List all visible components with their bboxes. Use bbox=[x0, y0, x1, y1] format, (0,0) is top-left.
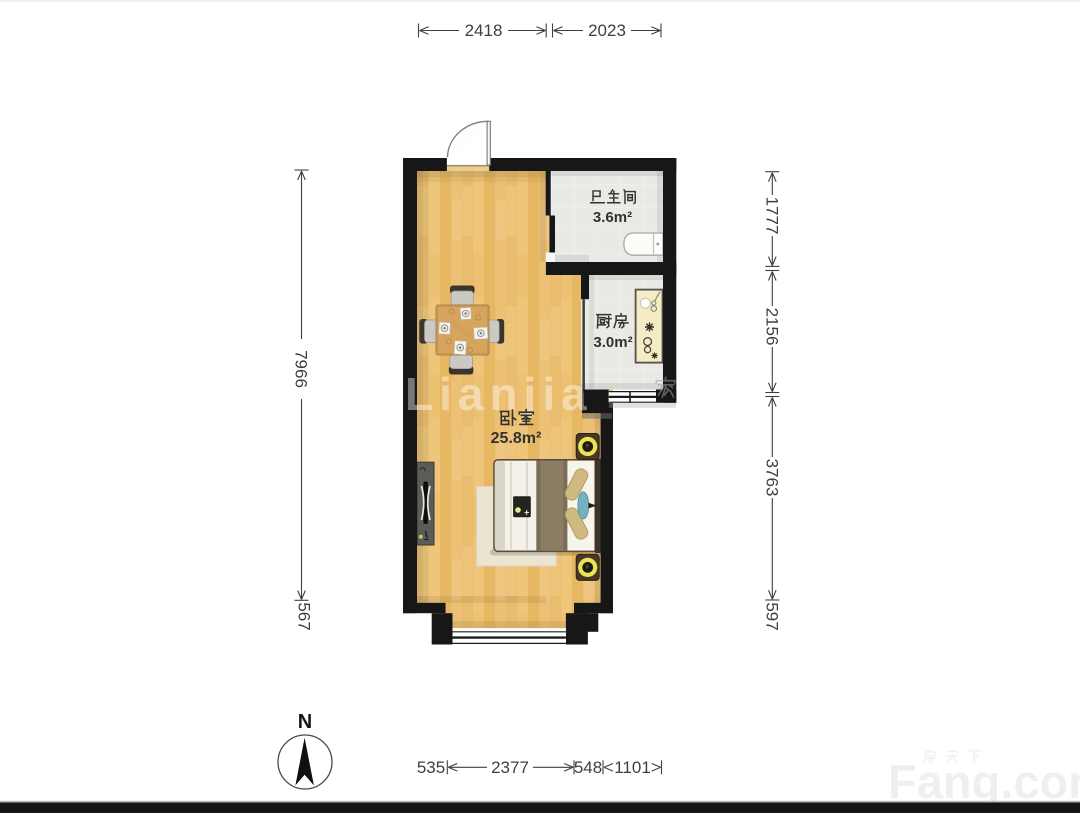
svg-text:25.8m²: 25.8m² bbox=[491, 430, 542, 447]
svg-text:N: N bbox=[298, 711, 312, 733]
svg-text:548: 548 bbox=[574, 758, 602, 777]
svg-text:7966: 7966 bbox=[292, 350, 311, 388]
svg-text:3.0m²: 3.0m² bbox=[593, 334, 632, 351]
svg-text:2023: 2023 bbox=[588, 21, 626, 40]
svg-text:567: 567 bbox=[295, 602, 314, 630]
svg-text:1777: 1777 bbox=[762, 197, 781, 235]
svg-text:Fang.com: Fang.com bbox=[888, 755, 1080, 808]
svg-text:2418: 2418 bbox=[465, 21, 503, 40]
svg-text:597: 597 bbox=[762, 602, 781, 630]
svg-text:3763: 3763 bbox=[762, 459, 781, 497]
svg-text:2156: 2156 bbox=[762, 308, 781, 346]
svg-text:2377: 2377 bbox=[491, 758, 529, 777]
svg-text:535: 535 bbox=[417, 758, 445, 777]
svg-text:3.6m²: 3.6m² bbox=[593, 209, 632, 226]
svg-text:Lianjia: Lianjia bbox=[405, 368, 593, 420]
svg-text:1101: 1101 bbox=[614, 758, 651, 777]
